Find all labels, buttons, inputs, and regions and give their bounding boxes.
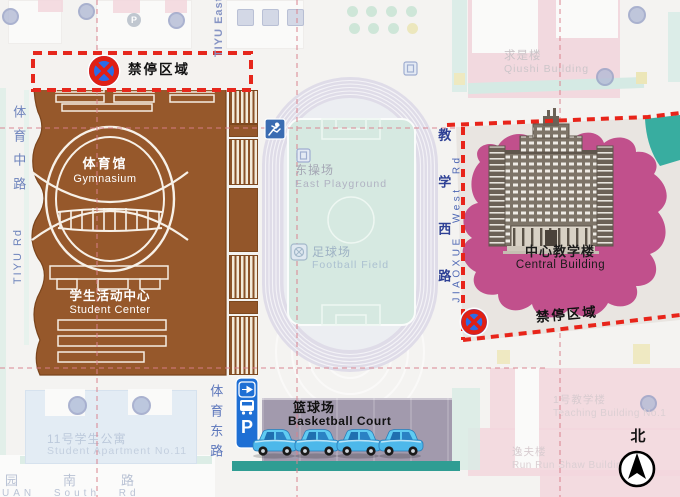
bg-kiosk [497,350,510,364]
no-parking-zone-right-border [447,113,680,340]
gymnasium-area [32,84,226,375]
map-marker-icon [237,9,254,26]
map-badge-icon [78,3,95,20]
football-field-area [288,119,415,325]
teal-strip [232,461,460,471]
basketball-court-area [262,398,452,462]
central-building-label-en: Central Building [503,259,618,272]
bg-kiosk [454,73,465,85]
bleachers [229,301,258,314]
teaching1-label-zh: 1号教学楼 [553,395,606,407]
campus-map: P 求是楼 Qiushi Building 1号教学楼 Teaching Bui… [0,0,680,497]
shaw-label-en: Run Run Shaw Building [512,460,628,471]
track-area [262,77,438,372]
map-marker-icon [262,9,279,26]
road-label-tiyu-east-top: TIYU East [213,0,225,57]
field-markings [322,119,380,325]
bg-building [38,0,63,12]
qiushi-label-zh: 求是楼 [504,50,542,63]
bleachers [229,255,258,299]
road-label-tiyu-middle-zh: 体育中路 [11,105,25,201]
map-badge-icon [168,12,185,29]
teaching1-label-en: Teaching Building No.1 [553,408,666,419]
map-marker-icon [297,149,310,162]
road-label-jiaoxue-west-en: JIAOXUE West Rd [452,129,463,329]
road-label-tiyu-east-zh: 体育东路 [208,384,222,464]
central-building-plot [463,131,667,317]
bleachers [229,90,258,124]
no-parking-label-right: 禁停区域 [535,305,598,325]
student-center-label-en: Student Center [60,304,160,316]
gymnasium-label-en: Gymnasium [70,173,140,185]
road-label-south-zh: 园南路 [5,474,179,488]
tree-icon [407,23,418,34]
basketball-court-label-en: Basketball Court [288,415,391,428]
east-playground-label-en: East Playground [295,179,387,191]
green-area [645,115,680,166]
tree-icon [386,6,397,17]
road-label-tiyu-middle-en: TIYU Rd [12,221,24,291]
parking-sign-p-label: P [238,418,256,438]
road-edge [452,388,480,470]
shaw-label-zh: 逸夫楼 [512,447,547,459]
no-parking-label-top: 禁停区域 [128,63,190,78]
bus-icon [240,400,254,415]
tree-icon [366,6,377,17]
road-label-jiaoxue-west-zh: 教学西路 [436,128,450,316]
bg-building [540,470,680,497]
road-label-south-en: UAN South Rd [2,488,140,497]
student-apartment-label-en: Student Apartment No.11 [47,446,187,458]
map-badge-icon [596,68,614,86]
north-label: 北 [624,429,652,446]
bleachers [229,139,258,185]
bg-kiosk [636,72,647,84]
football-field-label-zh: 足球场 [312,246,351,259]
east-playground-label-zh: 东操场 [295,164,334,177]
student-center-label-zh: 学生活动中心 [60,290,160,304]
bleachers [229,124,258,137]
tree-icon [388,23,399,34]
road-edge [0,88,6,488]
tree-icon [347,6,358,17]
map-badge-icon [628,6,646,24]
map-badge-icon [68,396,87,415]
bg-kiosk [633,344,650,364]
map-badge-icon [2,8,19,25]
bg-block [556,0,618,38]
bg-block [472,0,538,53]
gym-structures [50,85,214,362]
parking-badge-icon: P [127,13,141,27]
football-field-label-en: Football Field [312,260,389,272]
gym-dome [32,127,188,271]
tree-icon [406,6,417,17]
tree-icon [349,23,360,34]
bleachers [229,316,258,375]
road-edge [668,12,680,82]
runner-icon [265,119,285,139]
no-stopping-sign-icon [460,308,489,337]
central-building-label-zh: 中心教学楼 [505,245,615,259]
central-building-illustration [489,108,613,254]
gymnasium-label-zh: 体育馆 [70,157,140,171]
football-icon [291,244,307,260]
bleachers [229,188,258,252]
bg-building [113,0,140,13]
right-arrow-icon [239,382,255,397]
tree-icon [368,23,379,34]
map-badge-icon [132,396,151,415]
map-marker-icon [404,62,417,75]
map-marker-icon [287,9,304,26]
qiushi-label-en: Qiushi Building [504,64,589,76]
